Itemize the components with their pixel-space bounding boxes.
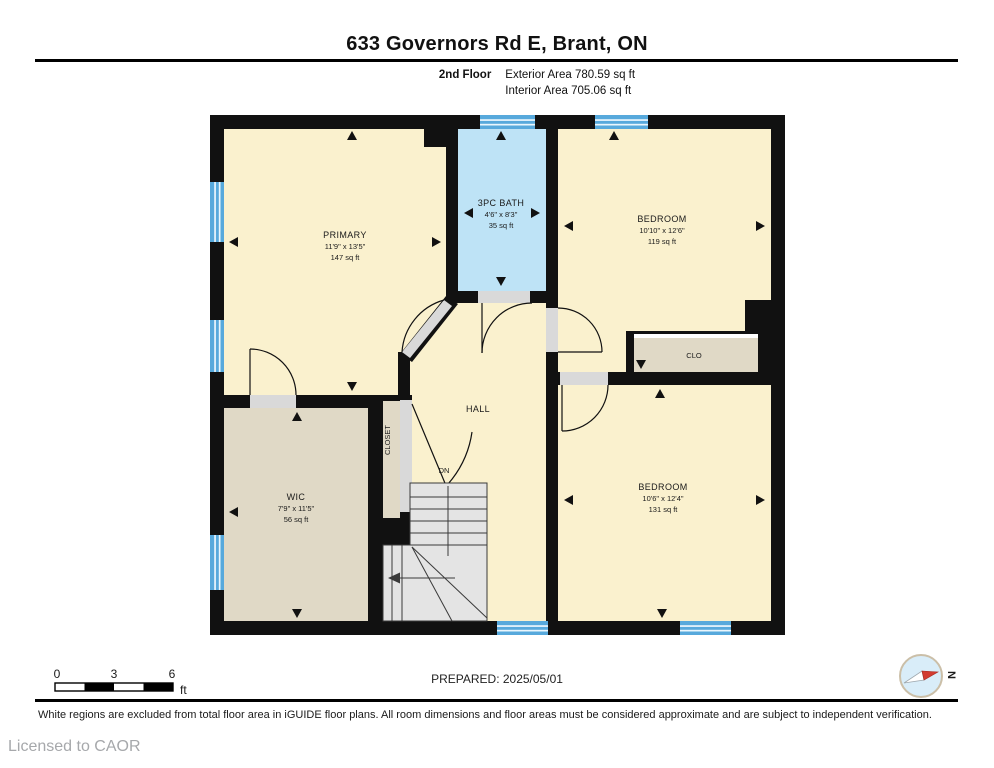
primary-name: PRIMARY [323, 230, 367, 240]
bedroom-top-area: 119 sq ft [648, 237, 677, 246]
hall-name: HALL [466, 404, 490, 414]
bath-dims: 4'6" x 8'3" [485, 210, 518, 219]
wic-dims: 7'9" x 11'5" [278, 504, 315, 513]
plan-walls-and-fills [210, 115, 785, 635]
prepared-date: PREPARED: 2025/05/01 [0, 672, 994, 686]
bath-area: 35 sq ft [489, 221, 515, 230]
bedroom-bottom-dims: 10'6" x 12'4" [642, 494, 683, 503]
primary-area: 147 sq ft [331, 253, 361, 262]
wic-area: 56 sq ft [284, 515, 310, 524]
bedroom-top-name: BEDROOM [637, 214, 686, 224]
bedroom-top-dims: 10'10" x 12'6" [639, 226, 685, 235]
floorplan-page: 633 Governors Rd E, Brant, ON 2nd Floor … [0, 0, 994, 768]
bedroom-bottom-name: BEDROOM [638, 482, 687, 492]
licensed-to: Licensed to CAOR [8, 738, 141, 756]
primary-dims: 11'9" x 13'5" [325, 242, 366, 251]
bath-name: 3PC BATH [478, 198, 525, 208]
bedroom-bottom-area: 131 sq ft [649, 505, 679, 514]
floorplan-drawing: PRIMARY 11'9" x 13'5" 147 sq ft 3PC BATH… [0, 0, 994, 768]
closet-name: CLOSET [383, 425, 392, 455]
stairs-dn-label: DN [439, 466, 450, 475]
footer-divider [35, 699, 958, 702]
clo-name: CLO [686, 351, 702, 360]
disclaimer-text: White regions are excluded from total fl… [38, 709, 964, 721]
wic-name: WIC [287, 492, 306, 502]
